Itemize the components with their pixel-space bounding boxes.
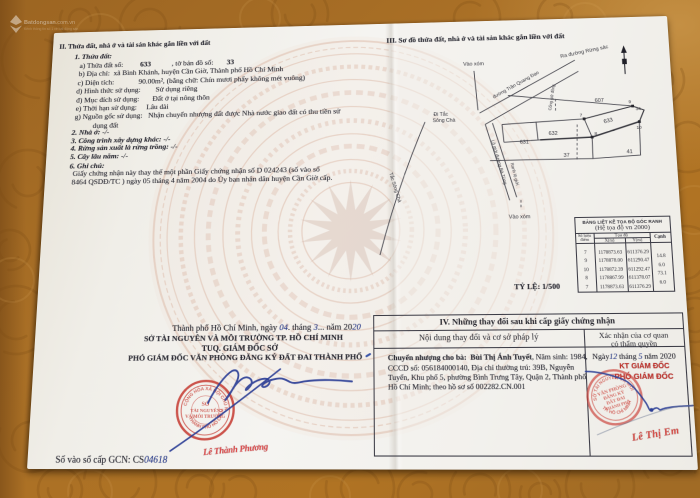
svg-text:Kênh thông tin số 1 về bất độn: Kênh thông tin số 1 về bất động sản	[24, 27, 78, 31]
svg-text:34: 34	[635, 106, 641, 111]
svg-text:632: 632	[549, 131, 559, 138]
svg-text:Tắc Sông Chà: Tắc Sông Chà	[388, 172, 404, 204]
svg-text:9: 9	[628, 99, 632, 104]
svg-text:631: 631	[520, 139, 530, 146]
svg-text:Lộ giới đường Bà Tùng: Lộ giới đường Bà Tùng	[490, 139, 509, 185]
svg-text:Sông Chà: Sông Chà	[433, 117, 456, 123]
svg-text:Ra đường Rừng sác: Ra đường Rừng sác	[560, 44, 610, 60]
svg-text:Đi Tắc: Đi Tắc	[433, 110, 449, 117]
svg-text:Vào xóm: Vào xóm	[509, 214, 531, 221]
svg-text:10: 10	[636, 125, 642, 130]
svg-text:Batdongsan.com.vn: Batdongsan.com.vn	[24, 20, 75, 26]
svg-text:đường Trần Quang Đạo: đường Trần Quang Đạo	[492, 69, 541, 99]
svg-text:7: 7	[580, 112, 584, 117]
svg-text:607: 607	[595, 98, 605, 105]
svg-text:Ranh lộ giới: Ranh lộ giới	[509, 162, 520, 186]
svg-text:633: 633	[603, 117, 614, 125]
svg-text:Vào xóm: Vào xóm	[463, 61, 484, 68]
svg-text:37: 37	[564, 153, 571, 160]
svg-text:41: 41	[626, 149, 633, 156]
